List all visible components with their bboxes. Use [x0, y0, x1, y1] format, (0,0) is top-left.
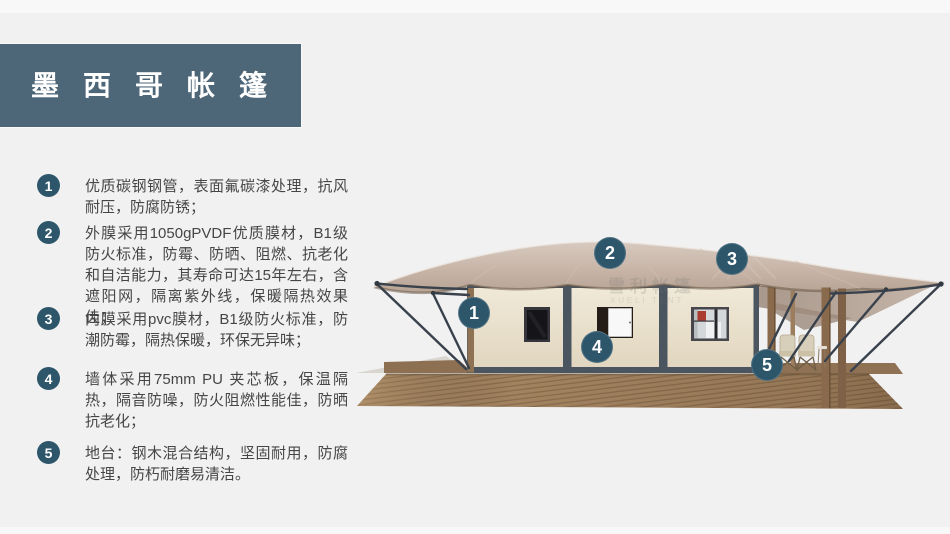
rod-node-left [374, 281, 379, 286]
rod-node-right [938, 281, 943, 286]
callout-3: 3 [716, 243, 748, 275]
callout-1: 1 [458, 297, 490, 329]
deck-platform [357, 373, 903, 409]
callout-5: 5 [751, 349, 783, 381]
guy-rods-left [377, 284, 469, 370]
brand-watermark: 雪利帐篷 XUELI TENT [608, 276, 696, 305]
callout-2: 2 [594, 237, 626, 269]
callout-4: 4 [581, 331, 613, 363]
window-a [524, 307, 550, 342]
watermark-en: XUELI TENT [610, 295, 684, 305]
tent-illustration: 雪利帐篷 XUELI TENT [0, 0, 950, 534]
watermark-cn: 雪利帐篷 [608, 276, 696, 296]
rod-node-right-2 [884, 287, 888, 291]
window-c [691, 307, 729, 341]
rod-node-left-2 [431, 291, 435, 295]
